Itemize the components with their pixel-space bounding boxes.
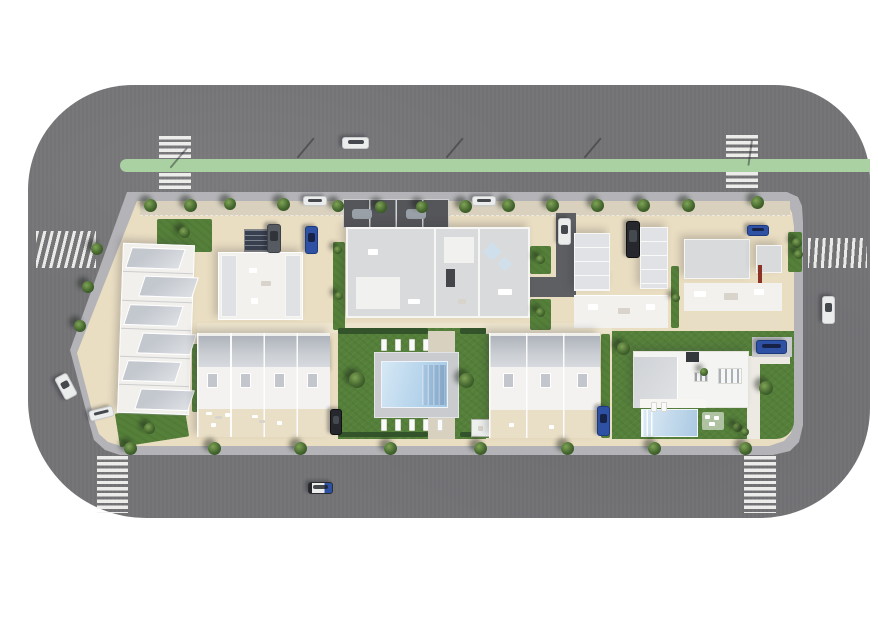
car-windshield: [600, 414, 607, 424]
site-plan-render: [0, 0, 878, 640]
car-parked-courtyard-nw: [305, 226, 318, 254]
car-left-road: [54, 372, 78, 401]
car-windshield: [308, 199, 322, 202]
car-right-road: [822, 296, 835, 324]
car-parked-ne: [747, 225, 769, 236]
car-parked-sw-drive: [330, 409, 342, 435]
car-windshield: [752, 228, 765, 231]
car-windshield: [308, 233, 315, 242]
car-windshield: [762, 344, 781, 348]
car-windshield: [348, 140, 364, 143]
car-windshield: [94, 409, 109, 416]
car-windshield: [60, 379, 70, 389]
car-windshield: [477, 199, 491, 202]
car-top-road: [342, 137, 369, 149]
car-bottom-road: [308, 482, 333, 494]
car-windshield: [825, 303, 832, 312]
car-parked-s-drive: [597, 406, 610, 436]
car-villa-drive: [756, 340, 787, 354]
car-parked-top-mid: [472, 196, 496, 206]
car-windshield: [313, 485, 328, 488]
cars-layer: [0, 0, 878, 640]
car-driveway-north: [558, 218, 571, 245]
van-parked-courtyard-ne: [626, 221, 640, 258]
car-windshield: [629, 230, 637, 242]
car-windshield: [561, 225, 568, 234]
car-windshield: [333, 416, 339, 424]
car-parked-top-west: [303, 196, 327, 206]
van-parked-courtyard-nw: [267, 224, 281, 253]
car-parked-west-bay: [88, 405, 115, 422]
car-windshield: [270, 231, 278, 240]
